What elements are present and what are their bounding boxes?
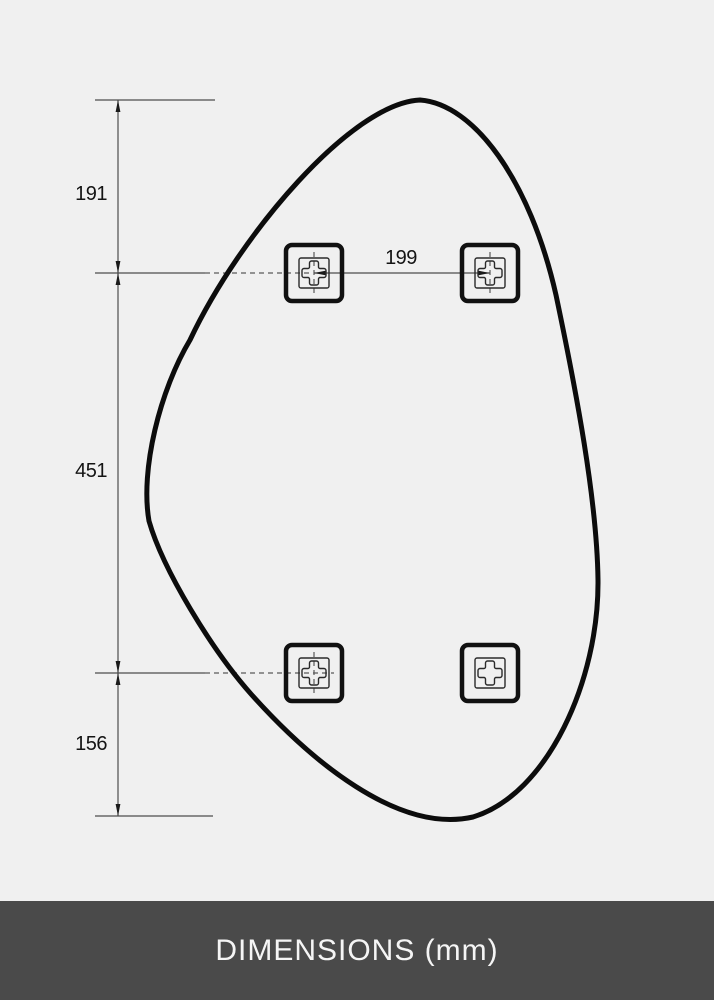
arrow-right-icon bbox=[478, 271, 490, 276]
bracket-outer-frame bbox=[462, 645, 518, 701]
mirror-outline bbox=[147, 100, 598, 819]
bracket-inner-plate bbox=[475, 658, 505, 688]
dimension-label-top-offset: 191 bbox=[75, 183, 107, 205]
arrow-down-icon bbox=[116, 804, 121, 816]
arrow-left-icon bbox=[314, 271, 326, 276]
arrow-up-icon bbox=[116, 673, 121, 685]
mounting-bracket-bottom-right bbox=[462, 645, 518, 701]
dimension-label-bottom-offset: 156 bbox=[75, 733, 107, 755]
mirror-dimension-drawing: 191 451 156 199 bbox=[0, 0, 714, 901]
footer-bar: DIMENSIONS (mm) bbox=[0, 901, 714, 1000]
arrow-down-icon bbox=[116, 261, 121, 273]
dimension-label-bracket-spacing: 199 bbox=[385, 247, 417, 269]
dimension-diagram: 191 451 156 199 bbox=[0, 0, 714, 901]
arrow-down-icon bbox=[116, 661, 121, 673]
dimension-label-middle-span: 451 bbox=[75, 460, 107, 482]
arrow-up-icon bbox=[116, 100, 121, 112]
screw-cross-icon bbox=[478, 661, 502, 685]
centerlines bbox=[205, 252, 490, 695]
dimension-arrows bbox=[116, 100, 490, 816]
footer-title: DIMENSIONS (mm) bbox=[215, 934, 498, 968]
arrow-up-icon bbox=[116, 273, 121, 285]
dimension-lines bbox=[95, 100, 490, 816]
